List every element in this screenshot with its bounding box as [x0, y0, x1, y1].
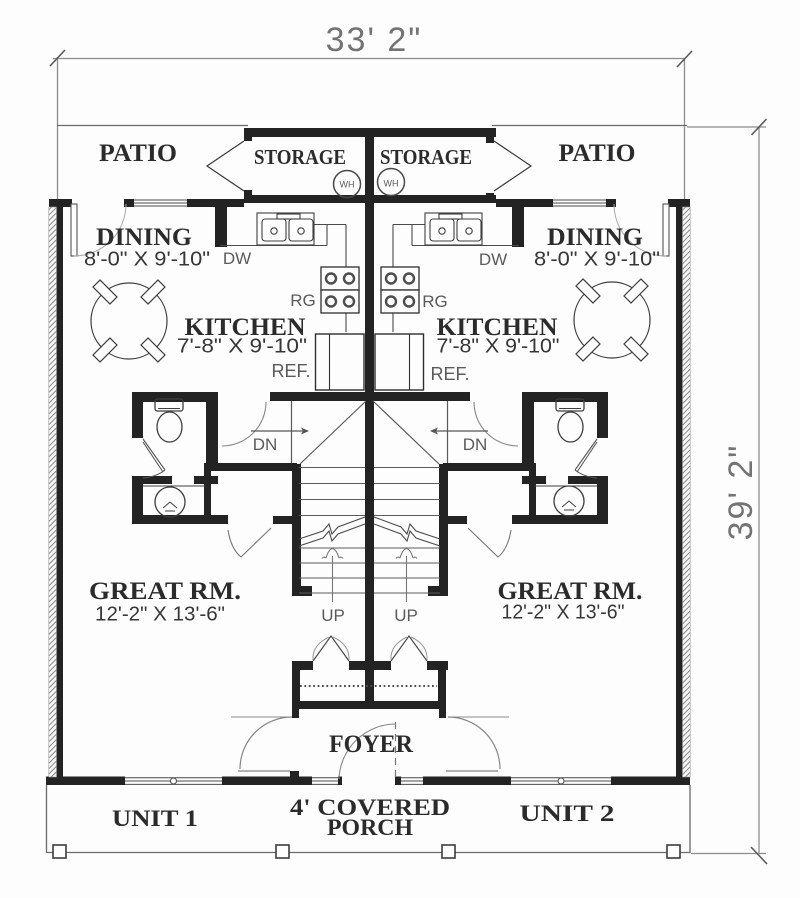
svg-text:PATIO: PATIO: [559, 140, 636, 167]
svg-text:DN: DN: [253, 435, 278, 454]
svg-text:33' 2": 33' 2": [326, 21, 423, 59]
svg-text:STORAGE: STORAGE: [380, 145, 472, 169]
svg-text:FOYER: FOYER: [329, 731, 414, 758]
svg-text:DN: DN: [463, 435, 488, 454]
svg-text:7'-8" X 9'-10": 7'-8" X 9'-10": [177, 336, 307, 358]
svg-text:WH: WH: [340, 180, 355, 190]
svg-text:REF.: REF.: [271, 361, 310, 381]
svg-text:UP: UP: [394, 606, 418, 625]
svg-text:UP: UP: [321, 606, 345, 625]
svg-text:UNIT 1: UNIT 1: [112, 806, 198, 831]
svg-text:39' 2": 39' 2": [722, 444, 760, 541]
svg-text:PATIO: PATIO: [99, 140, 177, 167]
svg-text:7'-8" X 9'-10": 7'-8" X 9'-10": [437, 336, 560, 358]
svg-text:12'-2" X 13'-6": 12'-2" X 13'-6": [95, 604, 225, 626]
svg-text:UNIT 2: UNIT 2: [520, 801, 615, 826]
svg-text:12'-2" X 13'-6": 12'-2" X 13'-6": [502, 602, 625, 624]
svg-text:DW: DW: [223, 249, 251, 268]
svg-text:DINING: DINING: [547, 224, 643, 251]
svg-text:GREAT RM.: GREAT RM.: [89, 578, 241, 605]
svg-text:DW: DW: [479, 250, 507, 269]
svg-text:RG: RG: [290, 291, 316, 310]
svg-text:8'-0" X 9'-10": 8'-0" X 9'-10": [534, 249, 660, 271]
svg-text:DINING: DINING: [96, 224, 192, 251]
svg-text:RG: RG: [422, 292, 448, 311]
svg-text:8'-0" X 9'-10": 8'-0" X 9'-10": [84, 249, 210, 271]
svg-text:STORAGE: STORAGE: [254, 145, 346, 169]
svg-text:PORCH: PORCH: [327, 815, 413, 840]
svg-text:REF.: REF.: [430, 364, 469, 384]
svg-text:WH: WH: [384, 179, 399, 189]
